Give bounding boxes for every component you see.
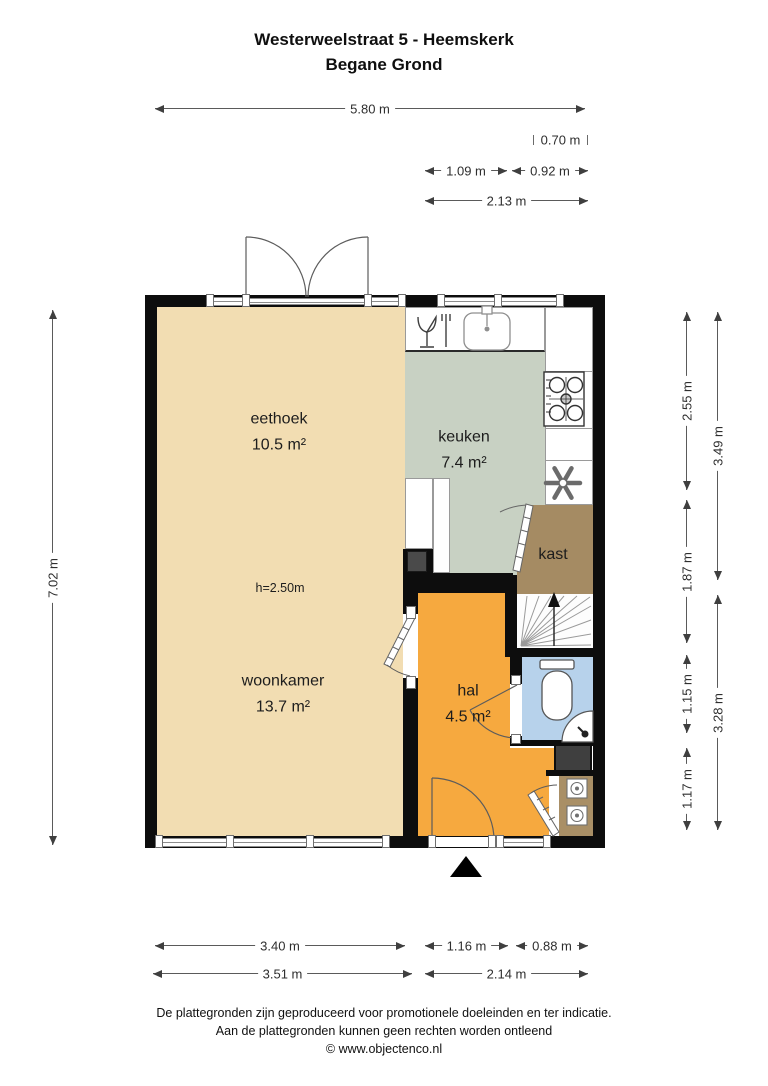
- window-hall-south: [500, 838, 546, 847]
- dim-label: 1.87 m: [679, 547, 694, 597]
- toilet-door-opening: [510, 684, 522, 736]
- door-post: [406, 606, 416, 619]
- counter-divider: [545, 460, 593, 461]
- wall-outer-right: [593, 295, 605, 848]
- door-post: [406, 676, 416, 689]
- duct-box: [554, 744, 592, 772]
- window-post: [494, 294, 502, 307]
- window-living-south: [157, 838, 390, 847]
- dim-label: 2.55 m: [679, 376, 694, 426]
- room-toilet-floor: [522, 657, 593, 742]
- wall-hall-stairs: [505, 575, 517, 657]
- kitchen-counter-right: [545, 307, 593, 505]
- room-label-kast: kast: [538, 542, 567, 568]
- door-post: [511, 675, 521, 685]
- room-area: 4.5 m²: [445, 704, 490, 730]
- dim-right-toilet-depth: 1.15 m: [686, 655, 687, 733]
- dim-right-kitchen-depth: 2.55 m: [686, 312, 687, 490]
- kitchen-cabinet-tall: [433, 478, 450, 573]
- window-post: [437, 294, 445, 307]
- room-name: eethoek: [251, 406, 308, 432]
- dim-label: 3.40 m: [255, 938, 305, 953]
- wall-outer-left: [145, 295, 157, 848]
- room-living-floor: [157, 307, 405, 836]
- room-name: keuken: [438, 424, 490, 450]
- plan-title-floor: Begane Grond: [0, 53, 768, 78]
- dim-bottom-hall-total: 2.14 m: [425, 973, 588, 974]
- counter-divider: [545, 428, 593, 429]
- room-label-hal: hal 4.5 m²: [445, 678, 490, 729]
- counter-divider: [545, 371, 593, 372]
- front-door-opening: [436, 837, 488, 847]
- window-post: [543, 835, 551, 848]
- window-top-left: [210, 297, 246, 306]
- window-post: [306, 835, 314, 848]
- disclaimer-line-1: De plattegronden zijn geproduceerd voor …: [0, 1004, 768, 1022]
- kitchen-duct-box: [407, 551, 427, 572]
- window-post: [382, 835, 390, 848]
- stairwell-floor: [517, 594, 593, 648]
- window-post: [364, 294, 372, 307]
- disclaimer-line-2: Aan de plattegronden kunnen geen rechten…: [0, 1022, 768, 1040]
- plan-title: Westerweelstraat 5 - Heemskerk Begane Gr…: [0, 28, 768, 77]
- dim-top-kitchen-total: 2.13 m: [425, 200, 588, 201]
- kitchen-counter-top: [405, 307, 545, 352]
- window-post: [206, 294, 214, 307]
- room-area: 10.5 m²: [251, 432, 308, 458]
- room-name: hal: [445, 678, 490, 704]
- entrance-marker: [450, 856, 482, 877]
- ceiling-height-note: h=2.50m: [256, 581, 305, 595]
- dim-left-total-depth: 7.02 m: [52, 310, 53, 845]
- room-name: kast: [538, 542, 567, 568]
- room-label-woonkamer: woonkamer 13.7 m²: [242, 668, 325, 719]
- wall-storage-top: [546, 770, 593, 776]
- dim-right-storage-depth: 1.17 m: [686, 748, 687, 830]
- dim-top-kitchen-right: 0.92 m: [512, 170, 588, 171]
- dim-label: 0.88 m: [527, 938, 577, 953]
- dim-label: 2.14 m: [482, 966, 532, 981]
- dim-top-kitchen-left: 1.09 m: [425, 170, 507, 171]
- dim-bottom-living-total: 3.51 m: [153, 973, 412, 974]
- storage-cupboard-floor: [559, 774, 593, 836]
- window-post: [398, 294, 406, 307]
- dim-label: 1.15 m: [679, 669, 694, 719]
- room-label-eethoek: eethoek 10.5 m²: [251, 406, 308, 457]
- window-post: [496, 835, 504, 848]
- dim-label: 1.09 m: [441, 163, 491, 178]
- french-door-threshold: [246, 298, 368, 305]
- dim-label: 7.02 m: [45, 553, 60, 603]
- window-post: [226, 835, 234, 848]
- dim-label: 2.13 m: [482, 193, 532, 208]
- copyright-line: © www.objectenco.nl: [0, 1040, 768, 1058]
- living-hall-door-opening: [403, 614, 418, 678]
- dim-label: 1.16 m: [442, 938, 492, 953]
- dim-right-lower-total: 3.28 m: [717, 595, 718, 830]
- wall-below-toilet: [510, 740, 593, 746]
- dim-label: 3.51 m: [258, 966, 308, 981]
- dim-bottom-storage-width: 0.88 m: [516, 945, 588, 946]
- disclaimer: De plattegronden zijn geproduceerd voor …: [0, 1004, 768, 1058]
- plan-title-address: Westerweelstraat 5 - Heemskerk: [0, 28, 768, 53]
- dim-right-closet-depth: 1.87 m: [686, 500, 687, 643]
- door-post: [511, 734, 521, 744]
- floorplan-page: { "title": { "line1": "Westerweelstraat …: [0, 0, 768, 1086]
- wall-stairs-toilet: [513, 648, 593, 657]
- room-label-keuken: keuken 7.4 m²: [438, 424, 490, 475]
- kitchen-cabinet: [405, 478, 433, 549]
- dim-label: 0.70 m: [536, 132, 586, 147]
- wall-kitchen-hall: [403, 573, 513, 593]
- dim-label: 1.17 m: [679, 764, 694, 814]
- dim-right-upper-total: 3.49 m: [717, 312, 718, 580]
- door-post: [488, 835, 496, 848]
- window-post: [155, 835, 163, 848]
- room-name: woonkamer: [242, 668, 325, 694]
- room-area: 13.7 m²: [242, 694, 325, 720]
- dim-label: 3.49 m: [710, 421, 725, 471]
- french-doors: [246, 237, 368, 297]
- dim-label: 3.28 m: [710, 688, 725, 738]
- window-post: [556, 294, 564, 307]
- dim-top-total-width: 5.80 m: [155, 108, 585, 109]
- room-area: 7.4 m²: [438, 450, 490, 476]
- dim-label: 5.80 m: [345, 101, 395, 116]
- door-post: [428, 835, 436, 848]
- dim-bottom-hall-width: 1.16 m: [425, 945, 508, 946]
- dim-label: 0.92 m: [525, 163, 575, 178]
- dim-bottom-living-width: 3.40 m: [155, 945, 405, 946]
- window-post: [242, 294, 250, 307]
